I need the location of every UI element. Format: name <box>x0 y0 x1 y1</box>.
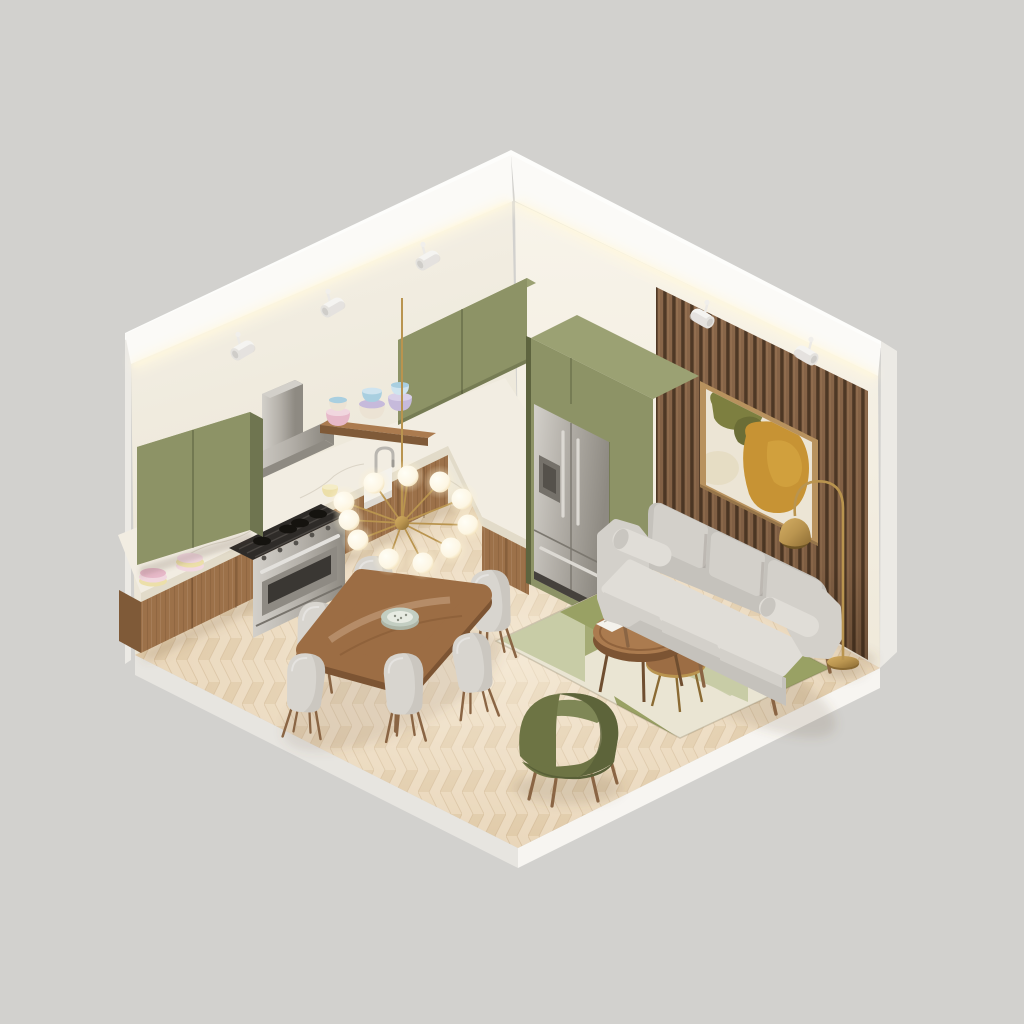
bolster-pillow <box>624 540 660 555</box>
room-render-canvas: Isometric 3D cutaway render of an open-p… <box>0 0 1024 1024</box>
chandelier-hub <box>395 516 409 530</box>
glass-globe <box>372 542 406 576</box>
centerpiece-bowl <box>381 608 419 631</box>
pastel-bowl-stack <box>326 397 350 426</box>
right-wall-outer-face <box>880 341 897 668</box>
isometric-room-screenshot: Isometric 3D cutaway render of an open-p… <box>0 0 1024 1024</box>
glass-globe <box>357 466 391 500</box>
pastel-bowl-stack <box>388 382 412 411</box>
glass-globe <box>391 459 425 493</box>
glass-globe <box>423 465 457 499</box>
pastel-bowl-stack <box>359 388 385 419</box>
glass-globe <box>332 503 366 537</box>
